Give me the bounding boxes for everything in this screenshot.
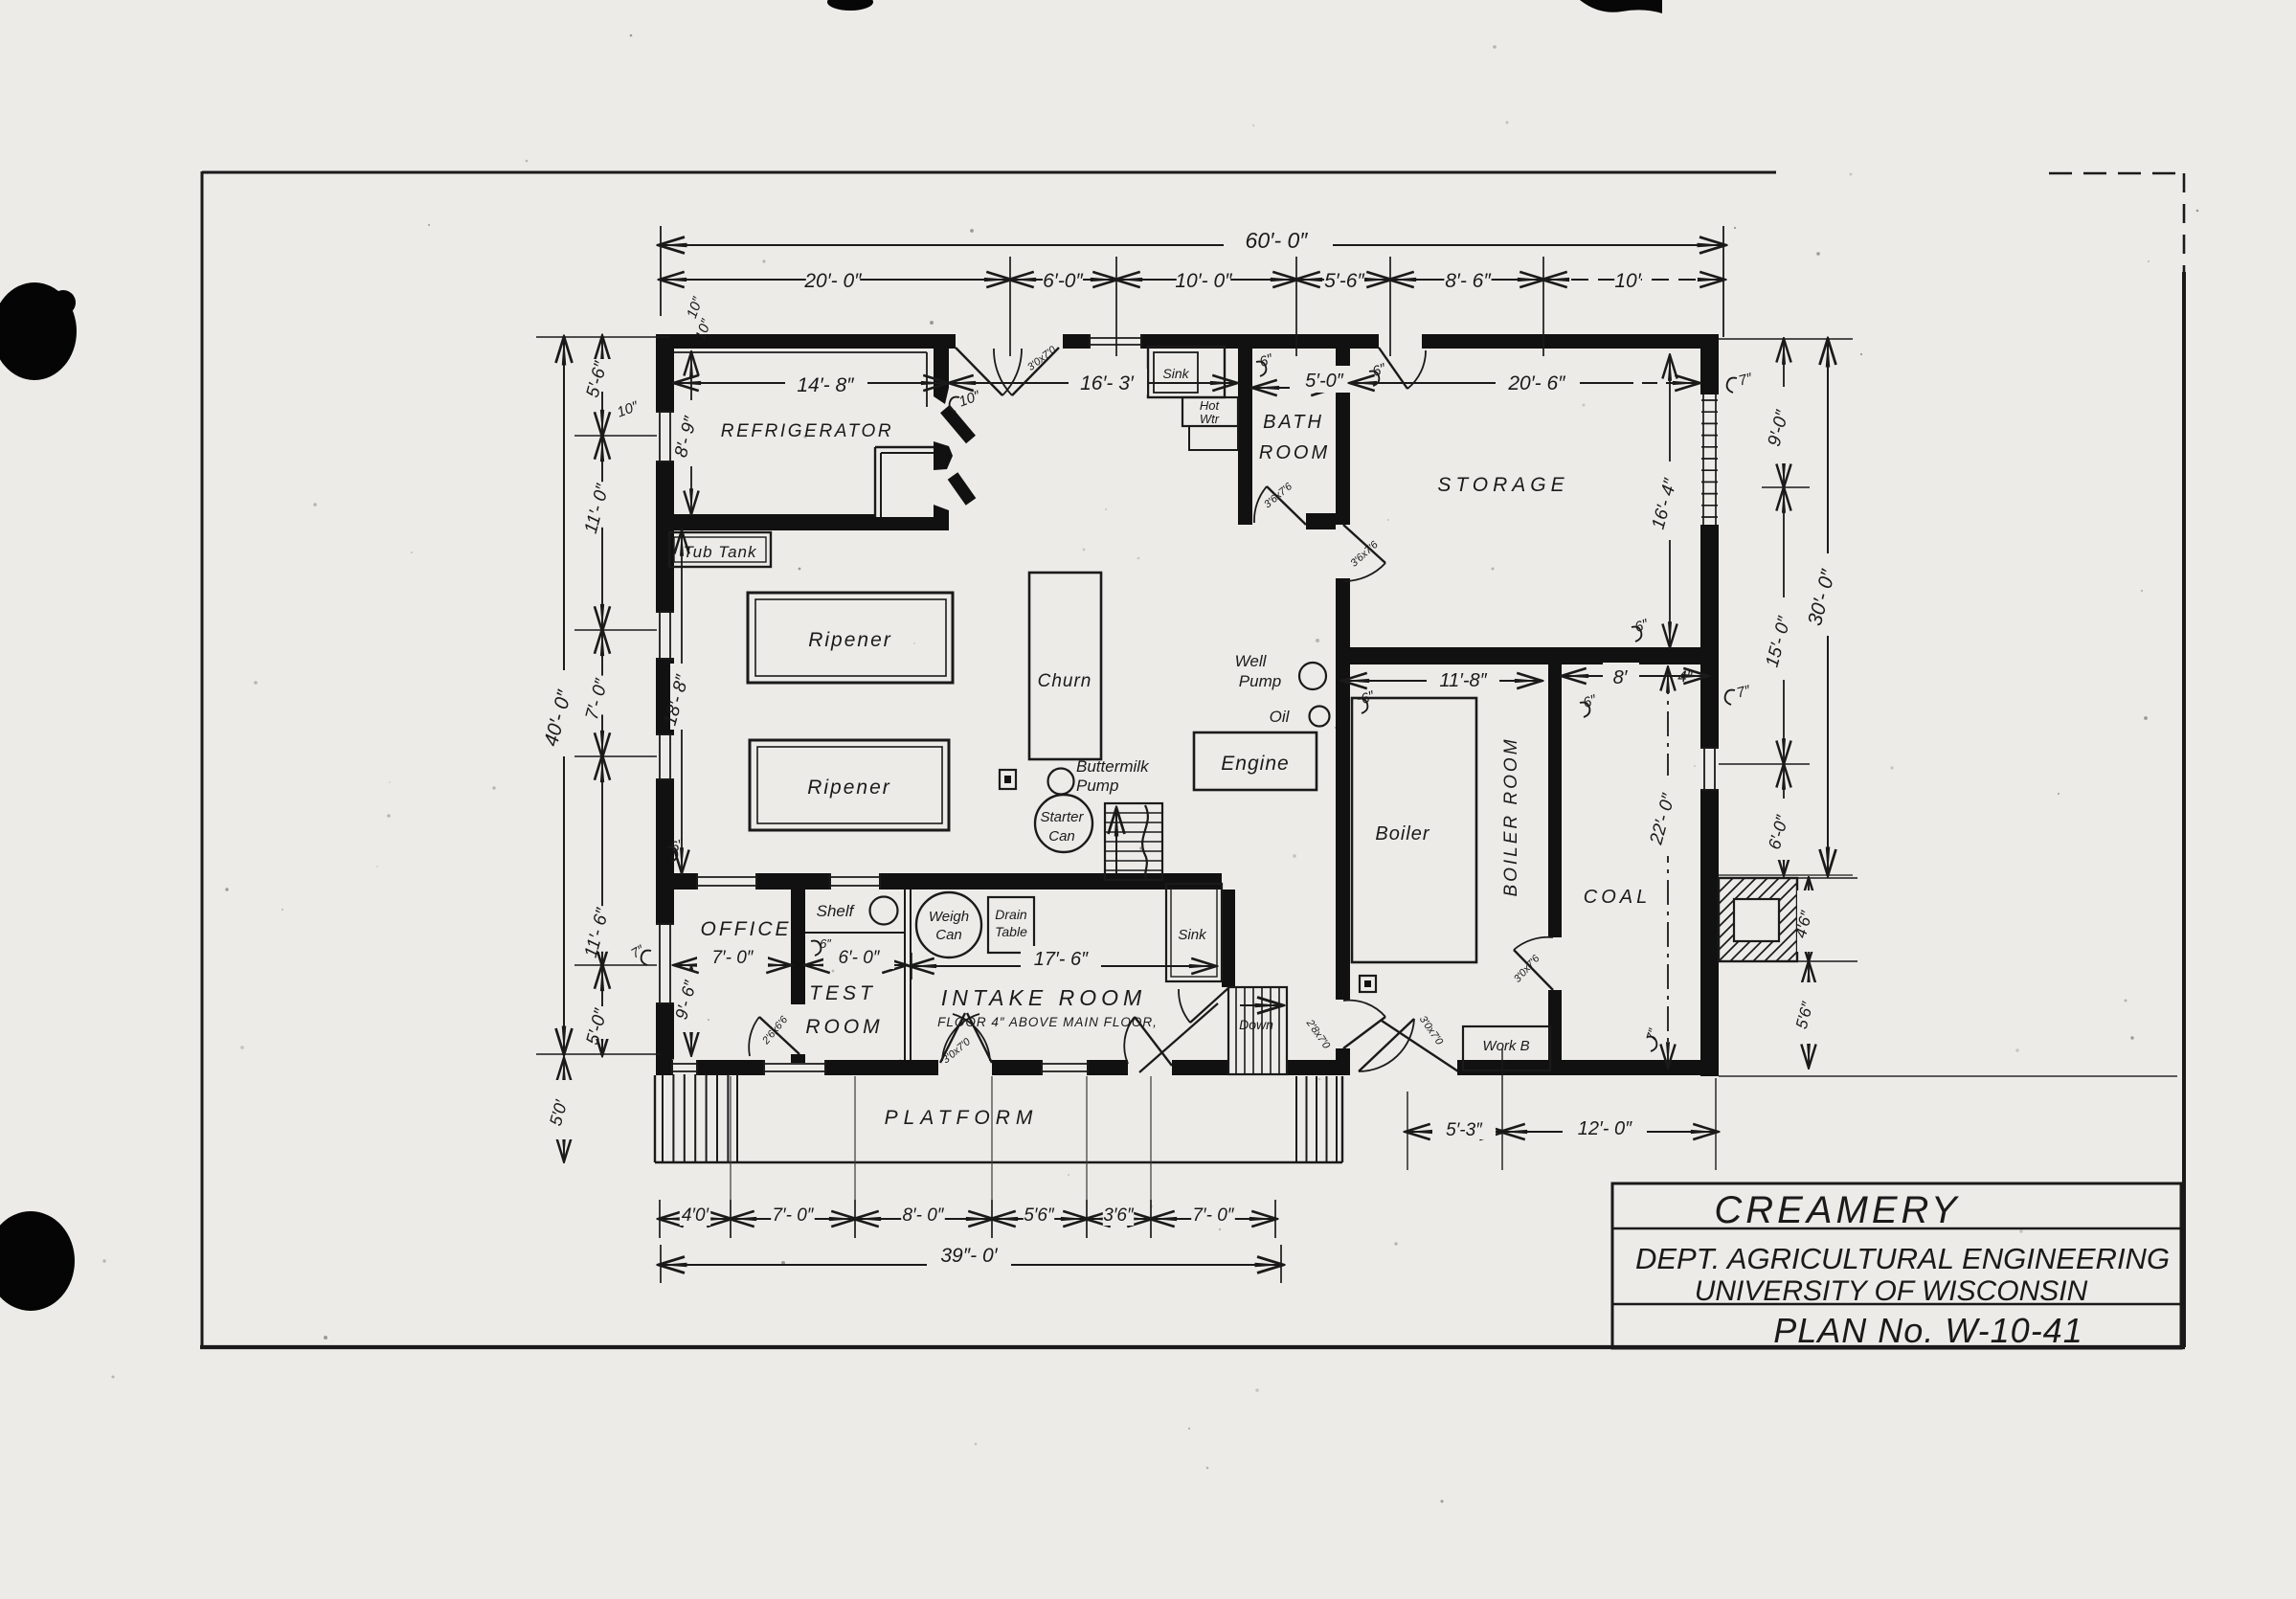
svg-text:Can: Can — [935, 927, 962, 943]
svg-text:39″- 0′: 39″- 0′ — [940, 1245, 998, 1267]
svg-text:COAL: COAL — [1584, 887, 1651, 908]
svg-text:Ripener: Ripener — [808, 629, 892, 651]
svg-text:5′-6″: 5′-6″ — [1324, 270, 1365, 292]
svg-text:7′- 0″: 7′- 0″ — [1192, 1205, 1234, 1226]
svg-text:6′- 0″: 6′- 0″ — [838, 948, 880, 968]
svg-text:Well: Well — [1235, 652, 1268, 670]
svg-text:ROOM: ROOM — [805, 1016, 883, 1038]
svg-text:14′- 8″: 14′- 8″ — [797, 374, 855, 396]
svg-text:20′- 6″: 20′- 6″ — [1507, 372, 1566, 394]
svg-text:Tub Tank: Tub Tank — [684, 543, 757, 561]
svg-text:5′-0″: 5′-0″ — [1305, 371, 1344, 392]
svg-text:PLAN No. W-10-41: PLAN No. W-10-41 — [1773, 1311, 2082, 1350]
svg-text:FLOOR 4″ ABOVE MAIN FLOOR,: FLOOR 4″ ABOVE MAIN FLOOR, — [937, 1015, 1158, 1029]
svg-text:UNIVERSITY OF WISCONSIN: UNIVERSITY OF WISCONSIN — [1695, 1275, 2088, 1307]
svg-text:8′: 8′ — [1613, 667, 1629, 688]
svg-text:PLATFORM: PLATFORM — [885, 1107, 1039, 1129]
svg-text:10′: 10′ — [1614, 270, 1641, 292]
svg-text:17′- 6″: 17′- 6″ — [1034, 949, 1089, 970]
svg-text:REFRIGERATOR: REFRIGERATOR — [721, 421, 893, 441]
svg-text:Drain: Drain — [995, 907, 1027, 922]
svg-text:Oil: Oil — [1270, 708, 1291, 726]
svg-text:6′-0″: 6′-0″ — [1043, 270, 1084, 292]
svg-text:Table: Table — [995, 924, 1027, 939]
svg-text:12′- 0″: 12′- 0″ — [1578, 1118, 1632, 1139]
svg-text:ROOM: ROOM — [1259, 442, 1330, 463]
svg-text:Buttermilk: Buttermilk — [1076, 757, 1150, 776]
svg-text:Down: Down — [1239, 1017, 1273, 1032]
svg-text:7′- 0″: 7′- 0″ — [772, 1205, 814, 1226]
svg-text:Boiler: Boiler — [1375, 823, 1429, 845]
svg-text:STORAGE: STORAGE — [1437, 474, 1568, 496]
svg-text:BOILER ROOM: BOILER ROOM — [1501, 736, 1521, 896]
svg-text:8′- 0″: 8′- 0″ — [902, 1205, 944, 1226]
svg-text:Starter: Starter — [1040, 809, 1084, 825]
svg-text:Hot: Hot — [1200, 398, 1221, 413]
svg-text:Weigh: Weigh — [929, 909, 969, 925]
svg-text:Sink: Sink — [1178, 927, 1207, 943]
svg-text:10′- 0″: 10′- 0″ — [1175, 270, 1233, 292]
svg-text:60′- 0″: 60′- 0″ — [1246, 228, 1309, 253]
svg-text:5′6″: 5′6″ — [1024, 1205, 1055, 1226]
svg-text:CREAMERY: CREAMERY — [1714, 1189, 1960, 1231]
svg-text:Wtr: Wtr — [1200, 412, 1220, 426]
svg-text:11′-8″: 11′-8″ — [1439, 670, 1487, 691]
svg-text:Churn: Churn — [1038, 671, 1092, 691]
svg-text:Pump: Pump — [1076, 777, 1118, 795]
svg-text:Shelf: Shelf — [817, 902, 856, 920]
svg-text:Sink: Sink — [1162, 366, 1189, 381]
svg-text:Work B: Work B — [1482, 1038, 1529, 1054]
svg-text:Pump: Pump — [1239, 672, 1281, 690]
svg-text:INTAKE ROOM: INTAKE ROOM — [941, 985, 1146, 1010]
svg-text:5′-3″: 5′-3″ — [1446, 1120, 1483, 1140]
svg-text:TEST: TEST — [809, 982, 876, 1004]
svg-text:OFFICE: OFFICE — [701, 918, 792, 940]
svg-text:Can: Can — [1048, 828, 1075, 845]
svg-text:8′- 6″: 8′- 6″ — [1445, 270, 1492, 292]
svg-text:20′- 0″: 20′- 0″ — [803, 270, 863, 292]
svg-text:DEPT. AGRICULTURAL ENGINEERING: DEPT. AGRICULTURAL ENGINEERING — [1635, 1242, 2170, 1275]
svg-text:16′- 3′: 16′- 3′ — [1080, 372, 1135, 394]
svg-text:4″: 4″ — [1677, 667, 1693, 686]
svg-text:Engine: Engine — [1221, 753, 1289, 775]
svg-text:7′- 0″: 7′- 0″ — [711, 948, 754, 968]
svg-text:BATH: BATH — [1263, 412, 1324, 433]
svg-text:3′6″: 3′6″ — [1103, 1205, 1135, 1226]
svg-text:Ripener: Ripener — [807, 777, 891, 799]
svg-text:4′0′: 4′0′ — [682, 1205, 710, 1226]
